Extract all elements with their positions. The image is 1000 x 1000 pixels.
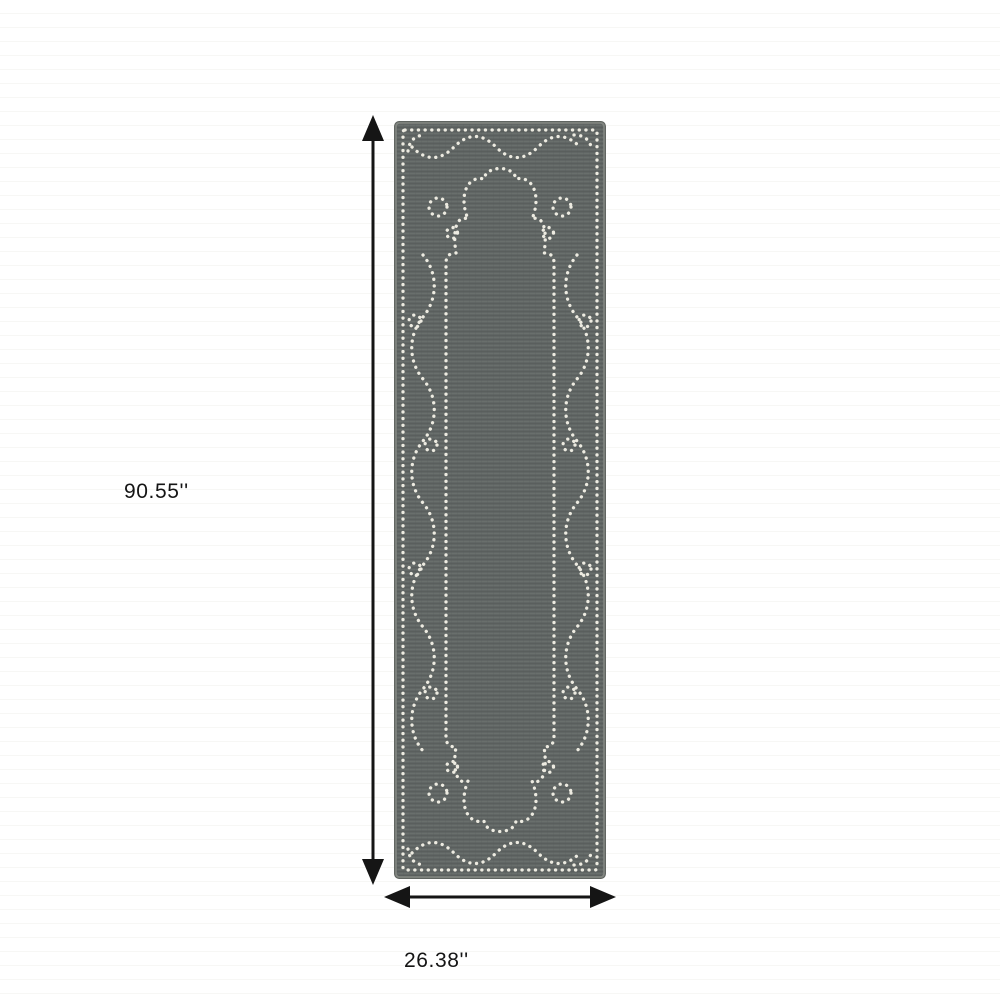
rug-image xyxy=(394,121,606,879)
height-arrowhead-top xyxy=(362,115,384,141)
height-dimension-label: 90.55'' xyxy=(124,480,189,504)
width-arrowhead-left xyxy=(384,886,410,908)
width-dimension-label: 26.38'' xyxy=(404,949,469,973)
width-arrowhead-right xyxy=(590,886,616,908)
width-arrow-icon xyxy=(384,886,616,908)
height-arrow-icon xyxy=(362,115,384,885)
rug-base xyxy=(396,123,605,878)
dimension-diagram: 90.55'' 26.38'' xyxy=(0,0,1000,1000)
height-arrowhead-bottom xyxy=(362,859,384,885)
